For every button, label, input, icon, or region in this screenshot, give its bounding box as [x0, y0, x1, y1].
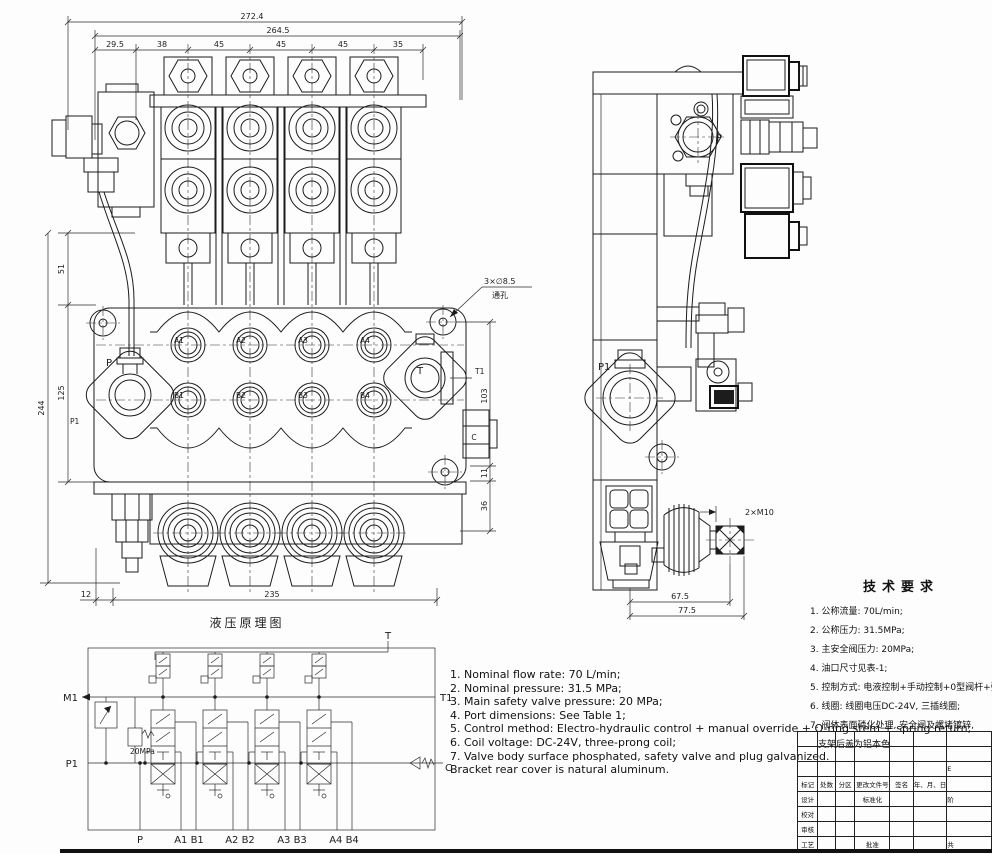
c-plug: C [463, 410, 497, 458]
dim-244: 244 [37, 400, 46, 415]
hole-callout-text: 3×∅8.5 [484, 277, 515, 286]
schematic-section-1 [143, 652, 196, 830]
dim-51: 51 [57, 264, 66, 274]
schematic-section-4 [299, 652, 352, 830]
partial-drawing-code: E [947, 762, 992, 777]
header-change-doc: 更改文件号 [855, 777, 890, 792]
design-row: 设计 标准化 阶 [798, 792, 992, 807]
dim-overall-width: 272.4 [241, 12, 264, 21]
dim-seg-2: 38 [157, 40, 167, 49]
port-label-a3: A3 [298, 336, 308, 345]
port-label-a4: A4 [360, 336, 370, 345]
port-label-b4: B4 [360, 391, 370, 400]
note-en-2: 2. Nominal pressure: 31.5 MPa; [450, 682, 920, 696]
side-bracket [657, 303, 752, 411]
hydraulic-schematic: 液压原理图 T M1 T1 P1 C 20MPa P A1 B1 A2 B2 A… [63, 615, 452, 846]
side-view: P [579, 56, 817, 620]
label-design: 设计 [798, 792, 818, 807]
dim-12: 12 [81, 590, 91, 599]
label-check: 校对 [798, 807, 818, 822]
header-count: 处数 [818, 777, 836, 792]
front-left-dimensions: 51 125 244 [37, 230, 135, 586]
dim-seg-1: 29.5 [106, 40, 124, 49]
header-mark: 标记 [798, 777, 818, 792]
dim-seg-4: 45 [276, 40, 286, 49]
revision-row-3: E [798, 762, 992, 777]
p-port: P P1 [70, 346, 179, 445]
schematic-section-3 [247, 652, 300, 830]
hole-callout: 3×∅8.5 通孔 [450, 277, 532, 317]
dim-inner-width: 264.5 [267, 26, 290, 35]
note-en-3: 3. Main safety valve pressure: 20 MPa; [450, 695, 920, 709]
dim-103: 103 [480, 388, 489, 403]
dim-675: 67.5 [671, 592, 689, 601]
port-label-t1: T1 [474, 367, 485, 376]
note-en-1: 1. Nominal flow rate: 70 L/min; [450, 668, 920, 682]
dim-11: 11 [480, 468, 489, 478]
tech-item-2: 2. 公称压力: 31.5MPa; [810, 622, 992, 641]
schematic-label-m1: M1 [63, 693, 78, 704]
port-label-c: C [471, 433, 476, 442]
dim-seg-5: 45 [338, 40, 348, 49]
schematic-label-t: T [384, 631, 392, 642]
tech-requirements-heading: 技术要求 [810, 576, 992, 595]
valve-section-2 [215, 44, 285, 592]
schematic-label-p1: P1 [66, 759, 78, 770]
side-port-label-p1: P1 [598, 362, 610, 373]
revision-row-1 [798, 732, 992, 747]
bottom-fitting [112, 494, 152, 572]
port-label-b3: B3 [298, 391, 308, 400]
label-review: 审核 [798, 822, 818, 837]
header-zone: 分区 [835, 777, 854, 792]
dim-seg-3: 45 [214, 40, 224, 49]
header-signature: 签名 [890, 777, 913, 792]
dim-775: 77.5 [678, 606, 696, 615]
m10-callout: 2×M10 [745, 508, 774, 517]
main-relief-valve [95, 697, 117, 765]
header-date: 年、月、日 [913, 777, 947, 792]
tech-item-3: 3. 主安全阀压力: 20MPa; [810, 641, 992, 660]
dim-125: 125 [57, 385, 66, 400]
port-label-a2: A2 [236, 336, 246, 345]
solenoid-connectors [741, 56, 817, 258]
partial-stage-label: 阶 [947, 792, 992, 807]
dim-235: 235 [264, 590, 279, 599]
port-label-a1: A1 [174, 336, 184, 345]
drawing-sheet: 272.4 264.5 29.5 38 45 45 45 35 [0, 0, 992, 854]
valve-section-4 [339, 44, 409, 592]
review-row: 审核 [798, 822, 992, 837]
port-label-b1: B1 [174, 391, 184, 400]
sheet-border [60, 849, 992, 853]
t-port: T T1 [378, 331, 484, 424]
check-row: 校对 [798, 807, 992, 822]
valve-section-1 [153, 44, 223, 592]
pilot-flange: P [664, 102, 726, 236]
relief-adjuster: 2×M10 [600, 486, 774, 588]
hole-callout-note: 通孔 [492, 290, 508, 300]
schematic-section-2 [195, 652, 248, 830]
schematic-bottom-label-p: P [137, 835, 143, 846]
dim-seg-6: 35 [393, 40, 403, 49]
revision-header-row: 标记 处数 分区 更改文件号 签名 年、月、日 [798, 777, 992, 792]
front-bottom-dimensions: 12 235 [80, 548, 440, 606]
tech-item-1: 1. 公称流量: 70L/min; [810, 603, 992, 622]
schematic-title: 液压原理图 [209, 615, 284, 630]
port-label-p: P [106, 358, 112, 369]
schematic-bottom-label-a3b3: A3 B3 [277, 835, 307, 846]
valve-section-3 [277, 44, 347, 592]
schematic-bottom-label-a2b2: A2 B2 [225, 835, 255, 846]
note-en-4: 4. Port dimensions: See Table 1; [450, 709, 920, 723]
side-p1-port: P1 [579, 347, 681, 474]
front-view: 272.4 264.5 29.5 38 45 45 45 35 [37, 12, 532, 606]
title-block: E 标记 处数 分区 更改文件号 签名 年、月、日 设计 标准化 阶 校对 审核… [797, 731, 992, 852]
label-standardization: 标准化 [855, 792, 890, 807]
port-label-b2: B2 [236, 391, 246, 400]
revision-row-2 [798, 747, 992, 762]
schematic-bottom-label-a4b4: A4 B4 [329, 835, 359, 846]
dim-36: 36 [480, 501, 489, 511]
mounting-holes [86, 305, 462, 489]
port-label-t: T [416, 366, 424, 377]
schematic-bottom-label-a1b1: A1 B1 [174, 835, 204, 846]
port-label-p1-front: P1 [70, 417, 80, 426]
